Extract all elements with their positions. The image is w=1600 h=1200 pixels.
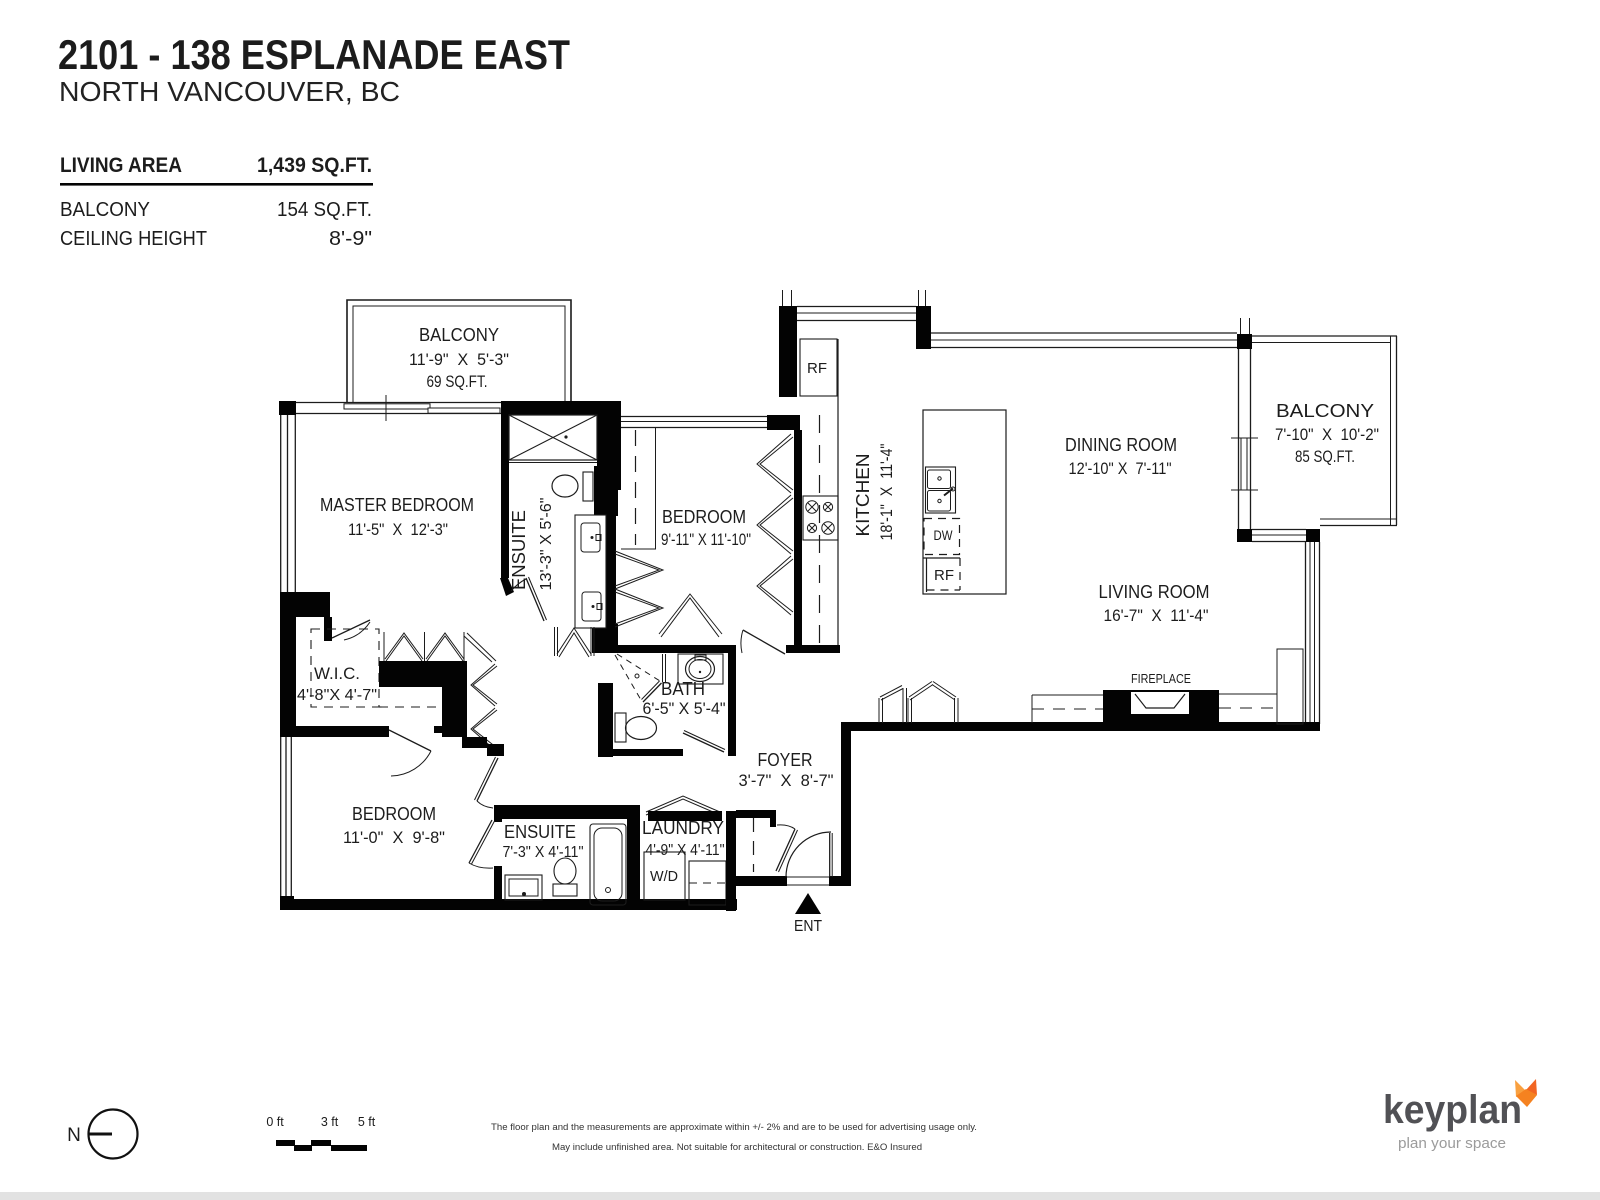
svg-text:LIVING ROOM: LIVING ROOM xyxy=(1099,582,1210,602)
svg-text:11'-9" X 5'-3": 11'-9" X 5'-3" xyxy=(409,350,509,369)
svg-text:W/D: W/D xyxy=(650,868,678,885)
svg-text:May include unfinished area. N: May include unfinished area. Not suitabl… xyxy=(552,1142,922,1153)
svg-text:ENSUITE: ENSUITE xyxy=(509,510,529,590)
svg-text:plan your space: plan your space xyxy=(1398,1135,1506,1152)
svg-text:69 SQ.FT.: 69 SQ.FT. xyxy=(427,372,488,391)
svg-text:W.I.C.: W.I.C. xyxy=(314,664,360,683)
svg-text:5 ft: 5 ft xyxy=(358,1115,376,1129)
svg-text:NORTH VANCOUVER, BC: NORTH VANCOUVER, BC xyxy=(59,76,400,107)
svg-text:9'-11" X 11'-10": 9'-11" X 11'-10" xyxy=(661,530,751,549)
svg-text:154 SQ.FT.: 154 SQ.FT. xyxy=(277,199,372,221)
svg-text:8'-9": 8'-9" xyxy=(329,228,372,250)
svg-text:11'-5" X 12'-3": 11'-5" X 12'-3" xyxy=(348,520,448,539)
svg-text:BALCONY: BALCONY xyxy=(419,325,499,345)
svg-text:DINING ROOM: DINING ROOM xyxy=(1065,435,1177,455)
svg-text:13'-3" X 5'-6": 13'-3" X 5'-6" xyxy=(538,498,555,591)
svg-text:LAUNDRY: LAUNDRY xyxy=(642,818,724,838)
svg-text:18'-1" X 11'-4": 18'-1" X 11'-4" xyxy=(878,443,896,540)
svg-text:RF: RF xyxy=(807,360,827,377)
svg-text:BATH: BATH xyxy=(661,679,705,699)
svg-text:85 SQ.FT.: 85 SQ.FT. xyxy=(1295,447,1355,466)
svg-text:ENT: ENT xyxy=(794,918,822,935)
svg-text:7'-3" X 4'-11": 7'-3" X 4'-11" xyxy=(503,844,584,861)
svg-text:2101 - 138 ESPLANADE EAST: 2101 - 138 ESPLANADE EAST xyxy=(58,31,570,78)
svg-text:3'-7" X 8'-7": 3'-7" X 8'-7" xyxy=(739,771,834,790)
svg-text:ENSUITE: ENSUITE xyxy=(504,822,576,842)
svg-text:16'-7" X 11'-4": 16'-7" X 11'-4" xyxy=(1104,606,1209,625)
svg-text:11'-0" X 9'-8": 11'-0" X 9'-8" xyxy=(343,828,445,847)
svg-text:FIREPLACE: FIREPLACE xyxy=(1131,671,1191,686)
svg-text:6'-5" X 5'-4": 6'-5" X 5'-4" xyxy=(643,700,726,718)
svg-text:BEDROOM: BEDROOM xyxy=(352,804,436,824)
svg-text:0 ft: 0 ft xyxy=(266,1115,284,1129)
svg-text:The floor plan and the measure: The floor plan and the measurements are … xyxy=(491,1122,977,1133)
svg-text:KITCHEN: KITCHEN xyxy=(853,454,873,537)
svg-text:BALCONY: BALCONY xyxy=(60,199,150,221)
svg-text:1,439 SQ.FT.: 1,439 SQ.FT. xyxy=(257,154,372,177)
svg-text:LIVING AREA: LIVING AREA xyxy=(60,154,182,177)
svg-text:12'-10" X 7'-11": 12'-10" X 7'-11" xyxy=(1069,459,1172,478)
svg-text:N: N xyxy=(67,1125,81,1146)
svg-text:4'-8"X 4'-7": 4'-8"X 4'-7" xyxy=(297,687,377,704)
svg-text:RF: RF xyxy=(934,567,954,584)
svg-text:keyplan: keyplan xyxy=(1383,1088,1522,1132)
svg-text:FOYER: FOYER xyxy=(758,750,813,770)
svg-text:MASTER BEDROOM: MASTER BEDROOM xyxy=(320,495,474,515)
svg-text:CEILING HEIGHT: CEILING HEIGHT xyxy=(60,228,207,250)
svg-text:BEDROOM: BEDROOM xyxy=(662,507,746,527)
svg-text:DW: DW xyxy=(934,527,954,543)
svg-text:BALCONY: BALCONY xyxy=(1276,401,1374,421)
svg-text:7'-10" X 10'-2": 7'-10" X 10'-2" xyxy=(1275,425,1379,444)
svg-text:3 ft: 3 ft xyxy=(321,1115,339,1129)
